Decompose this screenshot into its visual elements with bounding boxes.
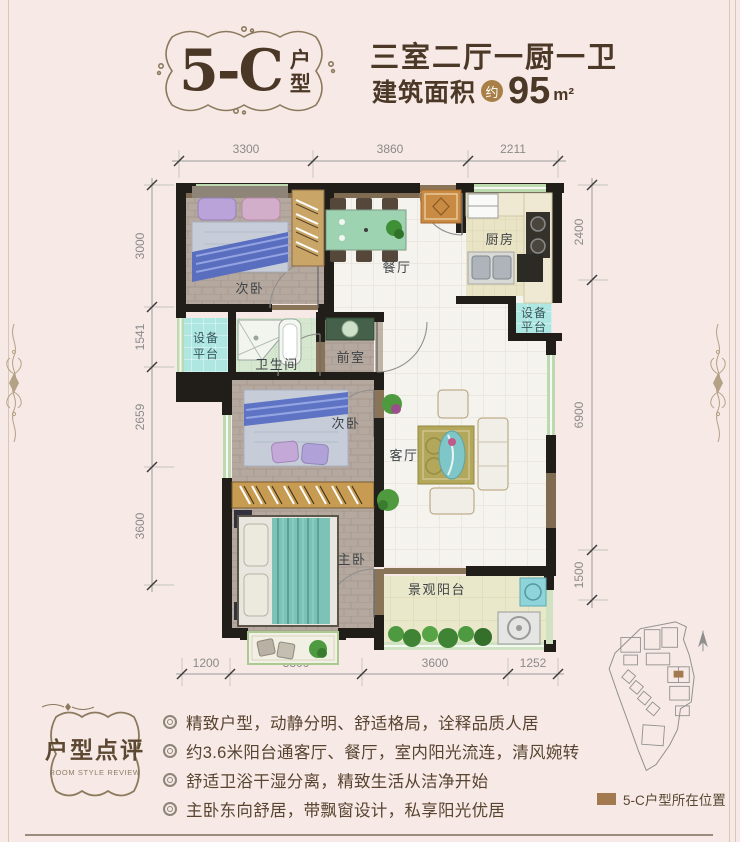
- review-bullets: 精致户型，动静分明、舒适格局，诠释品质人居 约3.6米阳台通客厅、餐厅，室内阳光…: [163, 712, 633, 828]
- right-edge-ornament: [705, 318, 731, 448]
- dim-left-3: 2659: [133, 403, 147, 430]
- site-buildings: [621, 628, 689, 746]
- area-value: 95: [508, 72, 550, 110]
- review-badge: 户型点评 ROOM STYLE REVIEW: [40, 702, 150, 806]
- dim-left-1: 3000: [133, 232, 147, 259]
- right-frame-line-outer: [735, 0, 736, 842]
- dim-right-3: 1500: [572, 561, 586, 588]
- label-equip-right-2: 平台: [521, 319, 547, 334]
- rooms-summary-title: 三室二厅一厨一卫: [370, 34, 618, 76]
- label-master: 主卧: [337, 552, 366, 567]
- master-furniture: [234, 510, 338, 626]
- label-bedroom-mid: 次卧: [331, 416, 360, 431]
- dim-right-2: 6900: [572, 401, 586, 428]
- legend-label: 5-C户型所在位置: [623, 789, 726, 809]
- label-foyer: 前室: [336, 350, 365, 365]
- label-equip-left-2: 平台: [193, 346, 219, 361]
- legend-swatch: [597, 793, 616, 805]
- label-living: 客厅: [389, 448, 418, 463]
- site-plan: [584, 616, 732, 788]
- dim-bottom-4: 1252: [520, 656, 547, 670]
- ring-bullet-icon: [163, 744, 177, 758]
- ring-bullet-icon: [163, 773, 177, 787]
- review-bullet-text: 主卧东向舒居，带飘窗设计，私享阳光优居: [186, 797, 505, 821]
- unit-location-marker: [674, 671, 684, 678]
- review-bullet-text: 约3.6米阳台通客厅、餐厅，室内阳光流连，清风婉转: [186, 739, 579, 763]
- unit-code-badge: 5-C 户型: [148, 20, 344, 120]
- label-balcony: 景观阳台: [408, 582, 466, 597]
- dim-right-1: 2400: [572, 218, 586, 245]
- north-arrow-icon: [698, 631, 708, 652]
- review-badge-title: 户型点评: [45, 731, 145, 765]
- label-bedroom-top: 次卧: [235, 281, 264, 296]
- label-equip-left-1: 设备: [193, 331, 219, 345]
- dining-furniture: [326, 198, 406, 262]
- label-bathroom: 卫生间: [255, 357, 299, 372]
- ring-bullet-icon: [163, 715, 177, 729]
- approx-badge: 约: [481, 80, 503, 102]
- dim-top-1: 3300: [233, 142, 260, 156]
- unit-type-label: 户型: [290, 49, 313, 97]
- wardrobe-strip: [232, 482, 374, 508]
- dim-left-2: 1541: [133, 323, 147, 350]
- entry-rug: [421, 190, 461, 223]
- review-badge-flourish: [40, 702, 96, 712]
- area-line: 建筑面积 约 95 m²: [372, 72, 574, 110]
- dim-bottom-3: 3600: [422, 656, 449, 670]
- area-label: 建筑面积: [372, 73, 476, 109]
- review-bullet-text: 舒适卫浴干湿分离，精致生活从洁净开始: [186, 768, 488, 792]
- floor-plan: 3300 3860 2211 3000 1541 2659 3600 2400 …: [128, 140, 634, 696]
- review-bullet-row: 舒适卫浴干湿分离，精致生活从洁净开始: [163, 770, 633, 790]
- label-dining: 餐厅: [382, 260, 411, 275]
- foyer-basin: [326, 318, 374, 340]
- review-badge-subtitle: ROOM STYLE REVIEW: [49, 768, 140, 777]
- review-bullet-row: 精致户型，动静分明、舒适格局，诠释品质人居: [163, 712, 633, 732]
- unit-code: 5-C: [179, 42, 282, 99]
- review-bullet-row: 约3.6米阳台通客厅、餐厅，室内阳光流连，清风婉转: [163, 741, 633, 761]
- review-bullet-text: 精致户型，动静分明、舒适格局，诠释品质人居: [186, 710, 539, 734]
- label-kitchen: 厨房: [485, 232, 514, 247]
- dim-top-2: 3860: [377, 142, 404, 156]
- equip-platform-left-floor: [184, 318, 230, 372]
- dim-left-4: 3600: [133, 512, 147, 539]
- review-bullet-row: 主卧东向舒居，带飘窗设计，私享阳光优居: [163, 799, 633, 819]
- label-equip-right-1: 设备: [521, 306, 547, 320]
- dim-top-3: 2211: [500, 142, 526, 156]
- top-dimension-chain: 3300 3860 2211: [172, 142, 566, 178]
- bottom-rule: [25, 834, 713, 836]
- dim-bottom-1: 1200: [193, 656, 220, 670]
- site-boundary: [609, 622, 694, 771]
- ring-bullet-icon: [163, 802, 177, 816]
- left-dimension-chain: 3000 1541 2659 3600: [133, 178, 174, 592]
- site-plan-legend: 5-C户型所在位置: [597, 789, 726, 809]
- floorplan-brochure-page: { "page": { "bg": "#f7e9e5", "frame_colo…: [0, 0, 740, 842]
- left-edge-ornament: [1, 318, 27, 448]
- bay-window: [248, 632, 338, 664]
- right-dimension-chain: 2400 6900 1500: [572, 178, 608, 608]
- bottom-dimension-chain: 1200 3300 3600 1252: [176, 656, 564, 686]
- area-unit: m²: [553, 85, 574, 105]
